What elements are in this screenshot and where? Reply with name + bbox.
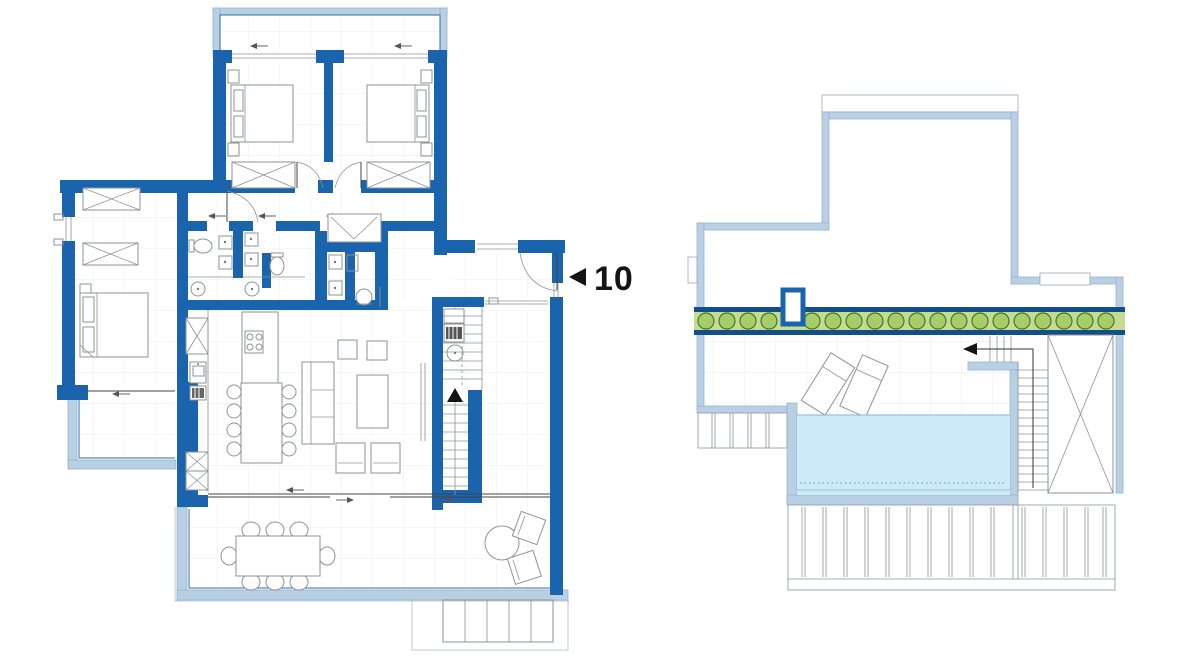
- bedroom-1: [228, 70, 295, 188]
- left-arrow-icon: [569, 268, 586, 286]
- tall-unit: [186, 452, 208, 471]
- sofa: [302, 362, 334, 444]
- void-shaft: [1048, 335, 1113, 493]
- tall-unit: [186, 471, 208, 490]
- armchair: [336, 443, 365, 473]
- roof-terrace-plan: [688, 95, 1125, 590]
- floorplan-drawing: 10: [0, 0, 1200, 667]
- pool: [797, 415, 1010, 495]
- window-west: [54, 214, 75, 245]
- kitchen-sink: [190, 362, 206, 383]
- parapet-opening: [688, 257, 697, 283]
- outdoor-dining-table: [236, 536, 320, 576]
- washer: [444, 324, 464, 342]
- closet: [328, 214, 381, 242]
- roof-edge: [822, 95, 1018, 112]
- bed: [367, 85, 429, 142]
- chimney-vent: [783, 290, 803, 324]
- dishwasher: [190, 386, 206, 400]
- armchair: [371, 443, 400, 473]
- wardrobe: [367, 162, 430, 188]
- window-entry: [477, 244, 518, 249]
- bed: [80, 293, 148, 357]
- ground-floor-plan: 10: [54, 8, 634, 650]
- louver-box: [698, 413, 787, 448]
- coffee-table: [357, 375, 388, 428]
- wardrobe: [83, 243, 138, 265]
- window-hall: [485, 298, 548, 304]
- floorplan-canvas: 10: [0, 0, 1200, 667]
- toilet: [356, 289, 372, 305]
- exterior-steps: [412, 600, 568, 650]
- parapet-opening: [1040, 273, 1090, 285]
- planter-strip: [694, 290, 1125, 335]
- dining-table: [241, 383, 282, 463]
- laundry-shelf: [444, 309, 464, 323]
- sliding-door-balcony: [87, 391, 175, 397]
- bedroom-2: [367, 70, 432, 188]
- unit-marker: 10: [569, 260, 634, 298]
- wood-deck: [788, 505, 1115, 590]
- wardrobe: [83, 188, 140, 210]
- bed: [231, 85, 293, 142]
- tall-unit: [186, 318, 208, 354]
- unit-number: 10: [594, 260, 634, 298]
- wardrobe: [232, 162, 295, 188]
